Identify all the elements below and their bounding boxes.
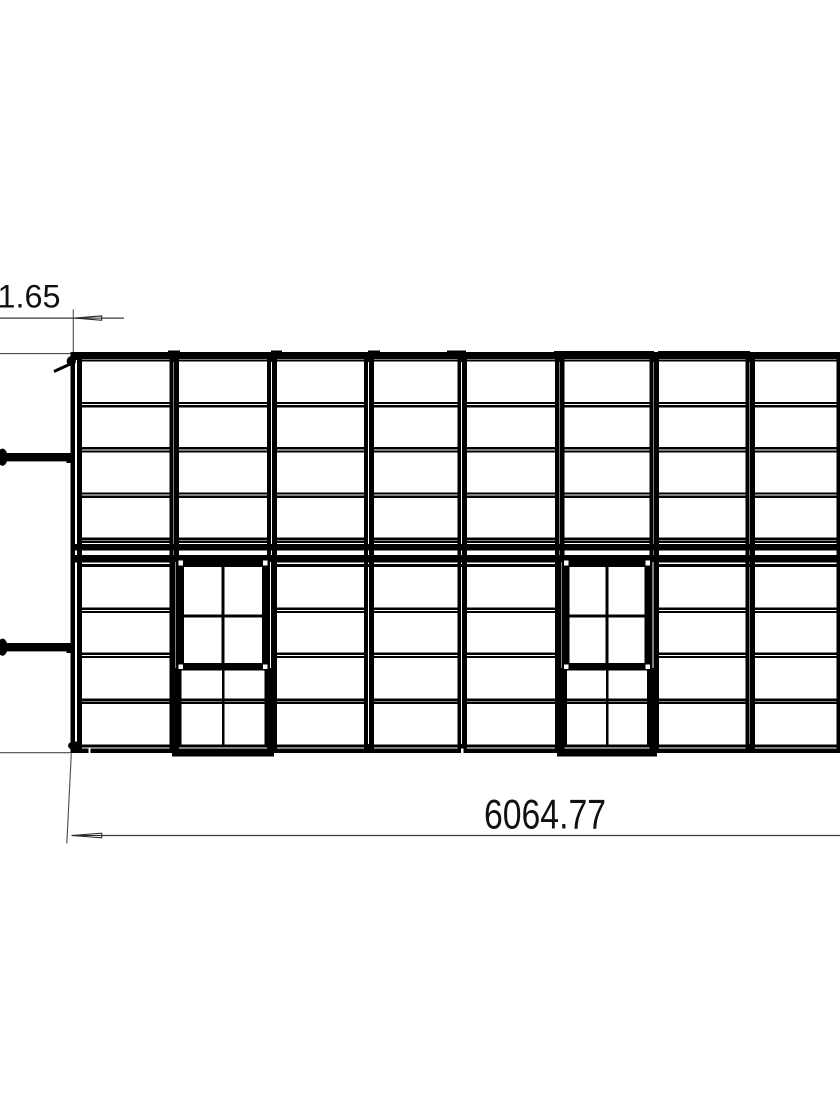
svg-text:6064.77: 6064.77	[484, 791, 606, 838]
svg-text:1.65: 1.65	[0, 278, 61, 314]
